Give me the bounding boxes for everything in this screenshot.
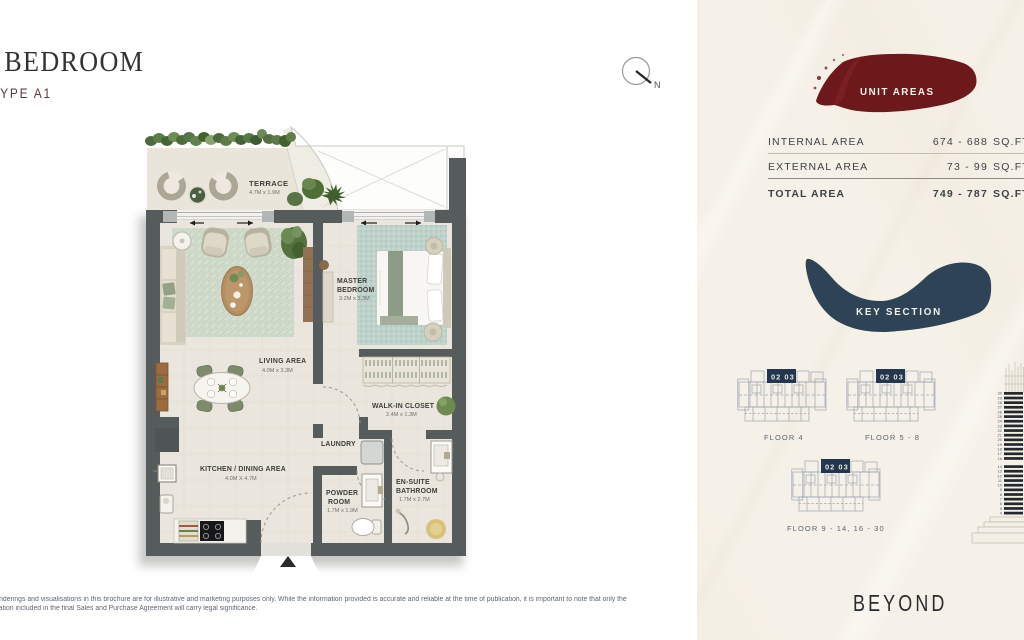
svg-text:TERRACE: TERRACE bbox=[249, 179, 289, 188]
svg-text:1.7M x 1.9M: 1.7M x 1.9M bbox=[327, 508, 358, 514]
svg-text:ROOM: ROOM bbox=[328, 499, 350, 506]
svg-text:16: 16 bbox=[998, 456, 1003, 461]
svg-text:3.2M x 3.3M: 3.2M x 3.3M bbox=[339, 296, 370, 302]
svg-text:KITCHEN / DINING AREA: KITCHEN / DINING AREA bbox=[200, 466, 286, 473]
svg-text:KEY SECTION: KEY SECTION bbox=[856, 307, 942, 318]
svg-text:4.0M X 4.7M: 4.0M X 4.7M bbox=[225, 476, 257, 482]
svg-text:02 03: 02 03 bbox=[880, 373, 904, 382]
svg-text:1.7M x 2.7M: 1.7M x 2.7M bbox=[399, 497, 430, 503]
svg-text:02 03: 02 03 bbox=[771, 373, 795, 382]
svg-text:4.7M x 1.9M: 4.7M x 1.9M bbox=[249, 190, 280, 196]
svg-text:LIVING AREA: LIVING AREA bbox=[259, 358, 306, 365]
svg-text:MASTER: MASTER bbox=[337, 278, 367, 285]
svg-text:LAUNDRY: LAUNDRY bbox=[321, 441, 356, 448]
svg-text:BEDROOM: BEDROOM bbox=[337, 287, 374, 294]
svg-text:WALK-IN CLOSET: WALK-IN CLOSET bbox=[372, 403, 435, 410]
svg-text:4: 4 bbox=[1000, 510, 1003, 515]
svg-text:UNIT AREAS: UNIT AREAS bbox=[860, 87, 935, 98]
svg-text:2.4M x 1.3M: 2.4M x 1.3M bbox=[386, 412, 417, 418]
svg-text:POWDER: POWDER bbox=[326, 490, 358, 497]
svg-text:EN-SUITE: EN-SUITE bbox=[396, 479, 430, 486]
svg-text:4.0M x 3.3M: 4.0M x 3.3M bbox=[262, 368, 293, 374]
svg-text:02 03: 02 03 bbox=[825, 463, 849, 472]
svg-text:N: N bbox=[654, 80, 661, 90]
svg-text:BATHROOM: BATHROOM bbox=[396, 488, 438, 495]
